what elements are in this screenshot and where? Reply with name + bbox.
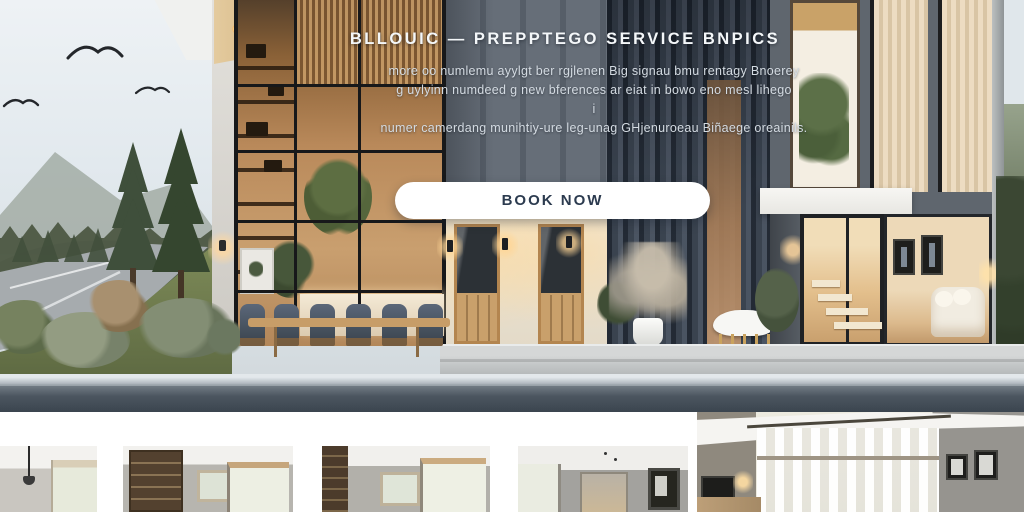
window-mullion — [238, 290, 442, 293]
window-mullion — [294, 0, 297, 346]
street-curb — [0, 374, 1024, 385]
framed-art — [946, 454, 968, 480]
outdoor-dining-set — [240, 296, 464, 378]
hero-heading: BLLOUIC — PREPPTEGO SERVICE BNPICS — [340, 30, 790, 49]
wall-sconce-icon — [219, 240, 226, 251]
table-leg — [416, 327, 419, 357]
framed-art — [974, 450, 998, 480]
window — [518, 464, 561, 512]
window — [51, 460, 97, 512]
hero-tagline-line: more oo numlemu ayylgt ber rgjlenen Big … — [352, 62, 836, 81]
sofa-pillow — [953, 289, 971, 305]
stair-step — [818, 294, 852, 301]
entry-door — [800, 214, 884, 346]
pendant-lamp-cord — [28, 446, 30, 476]
bay-window — [757, 428, 939, 512]
ceiling-light-icon — [614, 458, 617, 461]
gallery-thumb-4[interactable] — [518, 446, 688, 512]
window-mullion — [238, 150, 442, 153]
bookshelf — [129, 450, 183, 512]
gallery-thumb-1[interactable] — [0, 446, 97, 512]
hero-tagline-line: i — [352, 100, 836, 119]
bird-icon — [68, 47, 122, 58]
cream-wall — [446, 218, 607, 346]
shelf-item — [246, 44, 266, 58]
curtain-window — [938, 0, 992, 192]
platform-step-shadow — [440, 359, 1024, 362]
indoor-plant — [304, 158, 372, 236]
sofa-pillow — [935, 291, 953, 307]
doorway — [580, 472, 628, 512]
planter-pot — [633, 318, 663, 346]
window — [380, 472, 420, 506]
stair-step — [834, 322, 882, 329]
bird-icon — [136, 88, 169, 93]
wall-sconce-icon — [502, 238, 508, 250]
gallery-photo-large[interactable] — [697, 412, 1024, 512]
book-now-button[interactable]: BOOK NOW — [395, 182, 710, 219]
table-leg — [274, 327, 277, 357]
stair-step — [812, 280, 840, 287]
gallery-section — [0, 412, 1024, 512]
stair-step — [826, 308, 868, 315]
entry-platform — [440, 344, 1024, 378]
sofa — [931, 287, 985, 337]
hero-tagline-line: g uylyinn numdeed g new bferences ar eia… — [352, 81, 836, 100]
white-fascia — [760, 188, 912, 214]
glass-facade — [234, 0, 446, 346]
door-grooves — [541, 295, 581, 341]
window-mullion — [238, 220, 442, 223]
slat-tower-wall — [607, 0, 770, 346]
framed-art-image — [901, 247, 907, 267]
bird-icons — [4, 47, 169, 106]
living-room-window — [884, 214, 992, 346]
framed-art-image — [655, 476, 667, 496]
right-wing — [770, 0, 1024, 346]
garden-bush — [755, 268, 799, 332]
hero-section: BLLOUIC — PREPPTEGO SERVICE BNPICS more … — [0, 0, 1024, 412]
landing-page: BLLOUIC — PREPPTEGO SERVICE BNPICS more … — [0, 0, 1024, 512]
frame-mat — [979, 455, 993, 475]
framed-art — [921, 235, 943, 275]
window-mullion — [358, 0, 361, 346]
framed-art-image — [249, 258, 263, 280]
pendant-lamp-icon — [23, 476, 35, 485]
wood-floor — [697, 497, 761, 512]
framed-art — [893, 239, 915, 275]
window-mullion — [757, 456, 939, 460]
gallery-thumb-2[interactable] — [123, 446, 293, 512]
curtain-window — [870, 0, 928, 192]
dining-table — [248, 318, 450, 327]
frame-mat — [951, 459, 963, 475]
window — [420, 458, 486, 512]
bookshelf — [322, 446, 348, 512]
hero-tagline-line: numer camerdang munihtiy-ure leg-unag GH… — [352, 119, 836, 138]
gallery-thumb-3[interactable] — [322, 446, 490, 512]
wall-sconce-icon — [566, 236, 572, 248]
shelf-item — [264, 160, 282, 172]
lamp-glow — [733, 468, 753, 496]
pampas-grass — [609, 242, 687, 324]
hero-tagline: more oo numlemu ayylgt ber rgjlenen Big … — [352, 62, 836, 138]
street-bar — [0, 385, 1024, 412]
bird-icon — [4, 100, 38, 106]
window — [227, 462, 289, 512]
shelf-item — [246, 122, 268, 136]
wall-sconce-icon — [447, 240, 453, 252]
framed-art — [240, 248, 274, 294]
hedge — [996, 176, 1024, 346]
ceiling-light-icon — [604, 452, 607, 455]
framed-art — [648, 468, 680, 510]
framed-art-image — [929, 243, 935, 267]
